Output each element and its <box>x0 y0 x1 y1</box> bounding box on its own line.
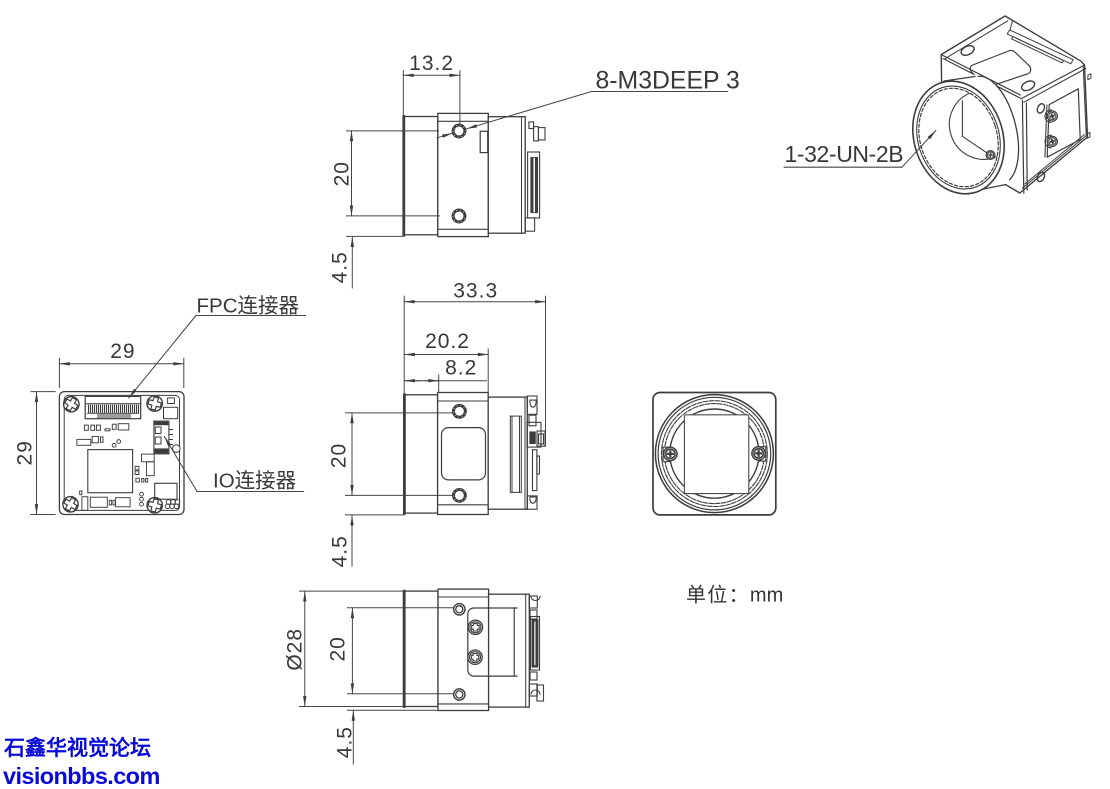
svg-text:29: 29 <box>14 440 37 465</box>
svg-text:FPC连接器: FPC连接器 <box>197 295 300 318</box>
svg-text:IO连接器: IO连接器 <box>213 470 296 493</box>
svg-text:1-32-UN-2B: 1-32-UN-2B <box>785 141 904 167</box>
svg-text:石鑫华视觉论坛: 石鑫华视觉论坛 <box>3 736 151 760</box>
svg-text:20: 20 <box>327 443 350 468</box>
svg-text:单位：mm: 单位：mm <box>686 584 783 607</box>
svg-text:20: 20 <box>327 636 350 661</box>
svg-text:8.2: 8.2 <box>445 357 477 380</box>
svg-text:4.5: 4.5 <box>334 726 357 758</box>
svg-text:visionbbs.com: visionbbs.com <box>3 763 160 789</box>
svg-text:4.5: 4.5 <box>329 251 352 283</box>
svg-text:13.2: 13.2 <box>409 52 454 75</box>
svg-text:20.2: 20.2 <box>425 330 470 353</box>
svg-text:29: 29 <box>110 340 135 363</box>
svg-text:4.5: 4.5 <box>329 535 352 567</box>
svg-text:Ø28: Ø28 <box>284 628 307 671</box>
svg-text:8-M3DEEP 3: 8-M3DEEP 3 <box>596 67 740 94</box>
svg-text:20: 20 <box>330 161 353 186</box>
svg-text:33.3: 33.3 <box>453 279 498 302</box>
